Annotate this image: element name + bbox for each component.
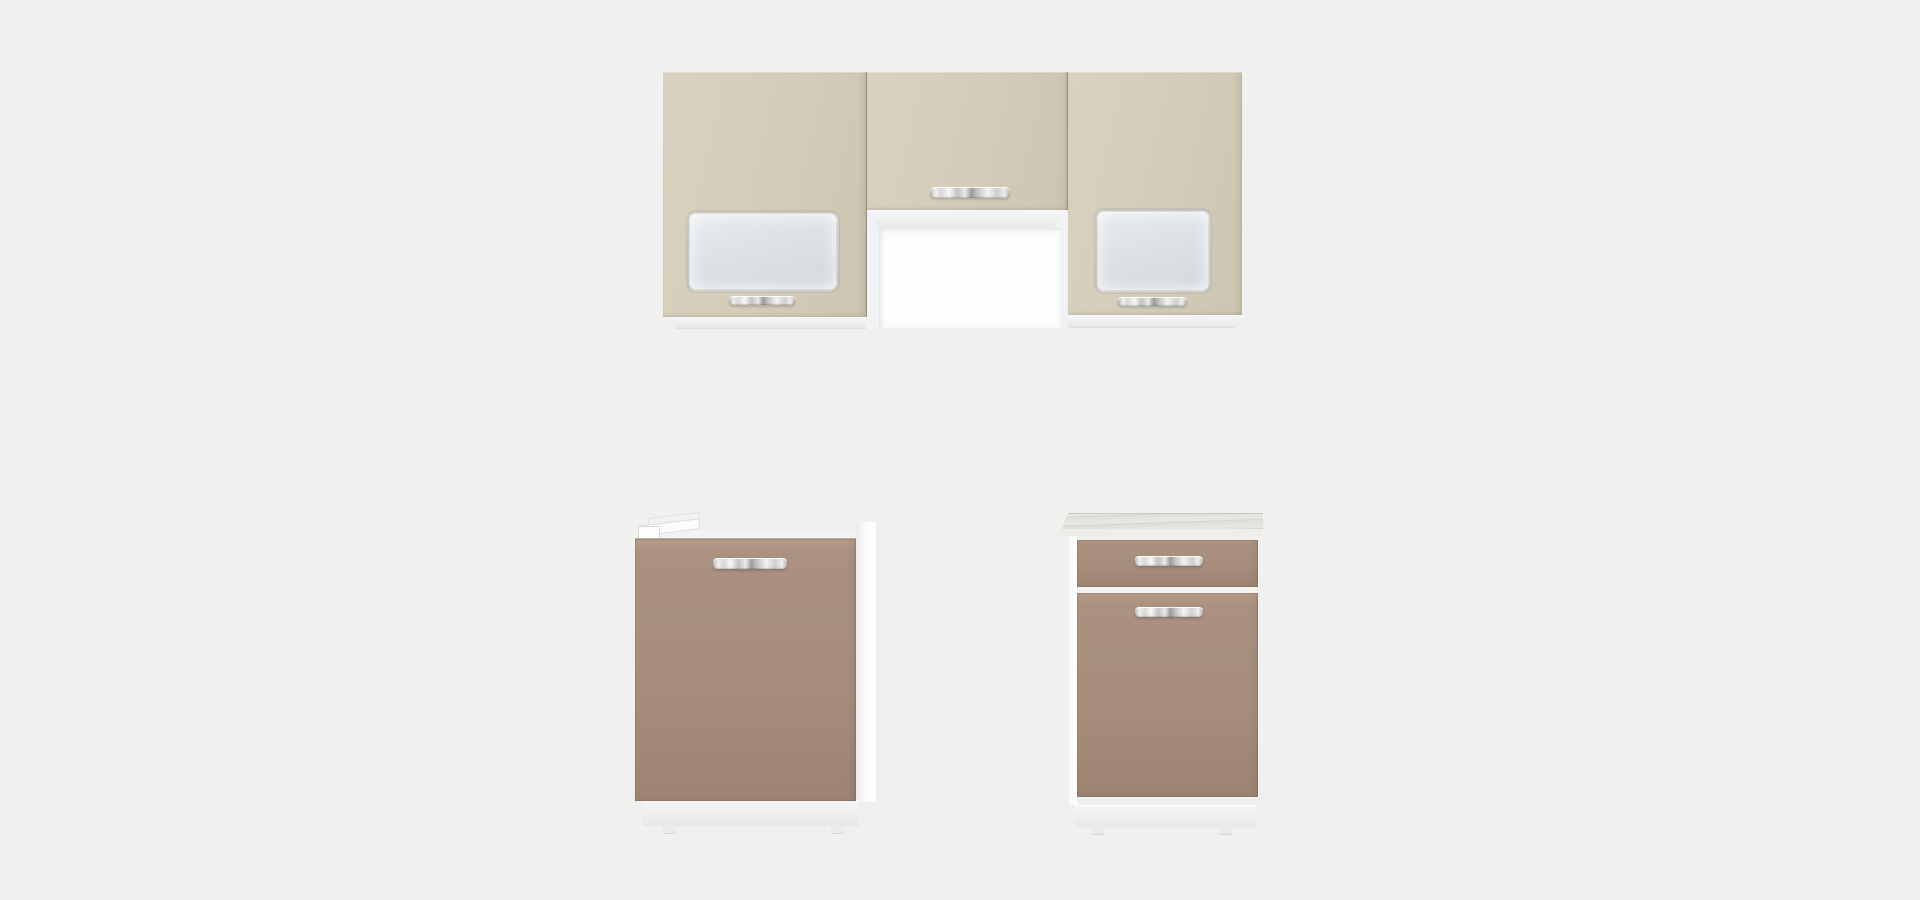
wall-cabinet-middle bbox=[867, 72, 1068, 210]
drawer-cabinet-door-handle bbox=[1135, 607, 1203, 617]
countertop-surface bbox=[1058, 513, 1263, 530]
drawer-cabinet-side-panel bbox=[1066, 536, 1077, 805]
product-image-canvas bbox=[0, 0, 1920, 900]
sink-cabinet-side-panel bbox=[856, 522, 876, 802]
sink-cabinet-plinth bbox=[643, 800, 859, 826]
frosted-glass-panel-left bbox=[687, 211, 839, 292]
right-cabinet-underside bbox=[1068, 315, 1248, 328]
wall-cabinet-right bbox=[1068, 72, 1242, 315]
sink-cabinet-door bbox=[635, 538, 856, 801]
wall-cabinet-left bbox=[663, 72, 867, 317]
wall-cabinet-middle-handle bbox=[930, 187, 1010, 198]
wall-recess-inner bbox=[879, 228, 1060, 328]
drawer-cabinet-bottom-rail bbox=[1077, 797, 1258, 805]
drawer-handle bbox=[1135, 556, 1203, 566]
sink-cabinet-foot-right bbox=[831, 826, 844, 834]
sink-cabinet-foot-left bbox=[663, 826, 676, 834]
sink-cabinet-door-handle bbox=[713, 558, 787, 569]
middle-cabinet-underside bbox=[866, 210, 1067, 229]
countertop bbox=[1058, 513, 1263, 536]
drawer-cabinet-foot-left bbox=[1092, 827, 1105, 835]
wall-cabinet-left-handle bbox=[729, 296, 795, 305]
frosted-glass-panel-right bbox=[1095, 209, 1211, 293]
drawer-cabinet-foot-right bbox=[1219, 827, 1232, 835]
wall-cabinet-right-handle bbox=[1118, 297, 1187, 306]
drawer-cabinet-plinth bbox=[1075, 805, 1257, 827]
left-cabinet-underside bbox=[663, 317, 866, 329]
drawer-cabinet-door bbox=[1077, 593, 1258, 797]
countertop-front-edge bbox=[1058, 529, 1263, 537]
drawer-front bbox=[1077, 540, 1258, 587]
